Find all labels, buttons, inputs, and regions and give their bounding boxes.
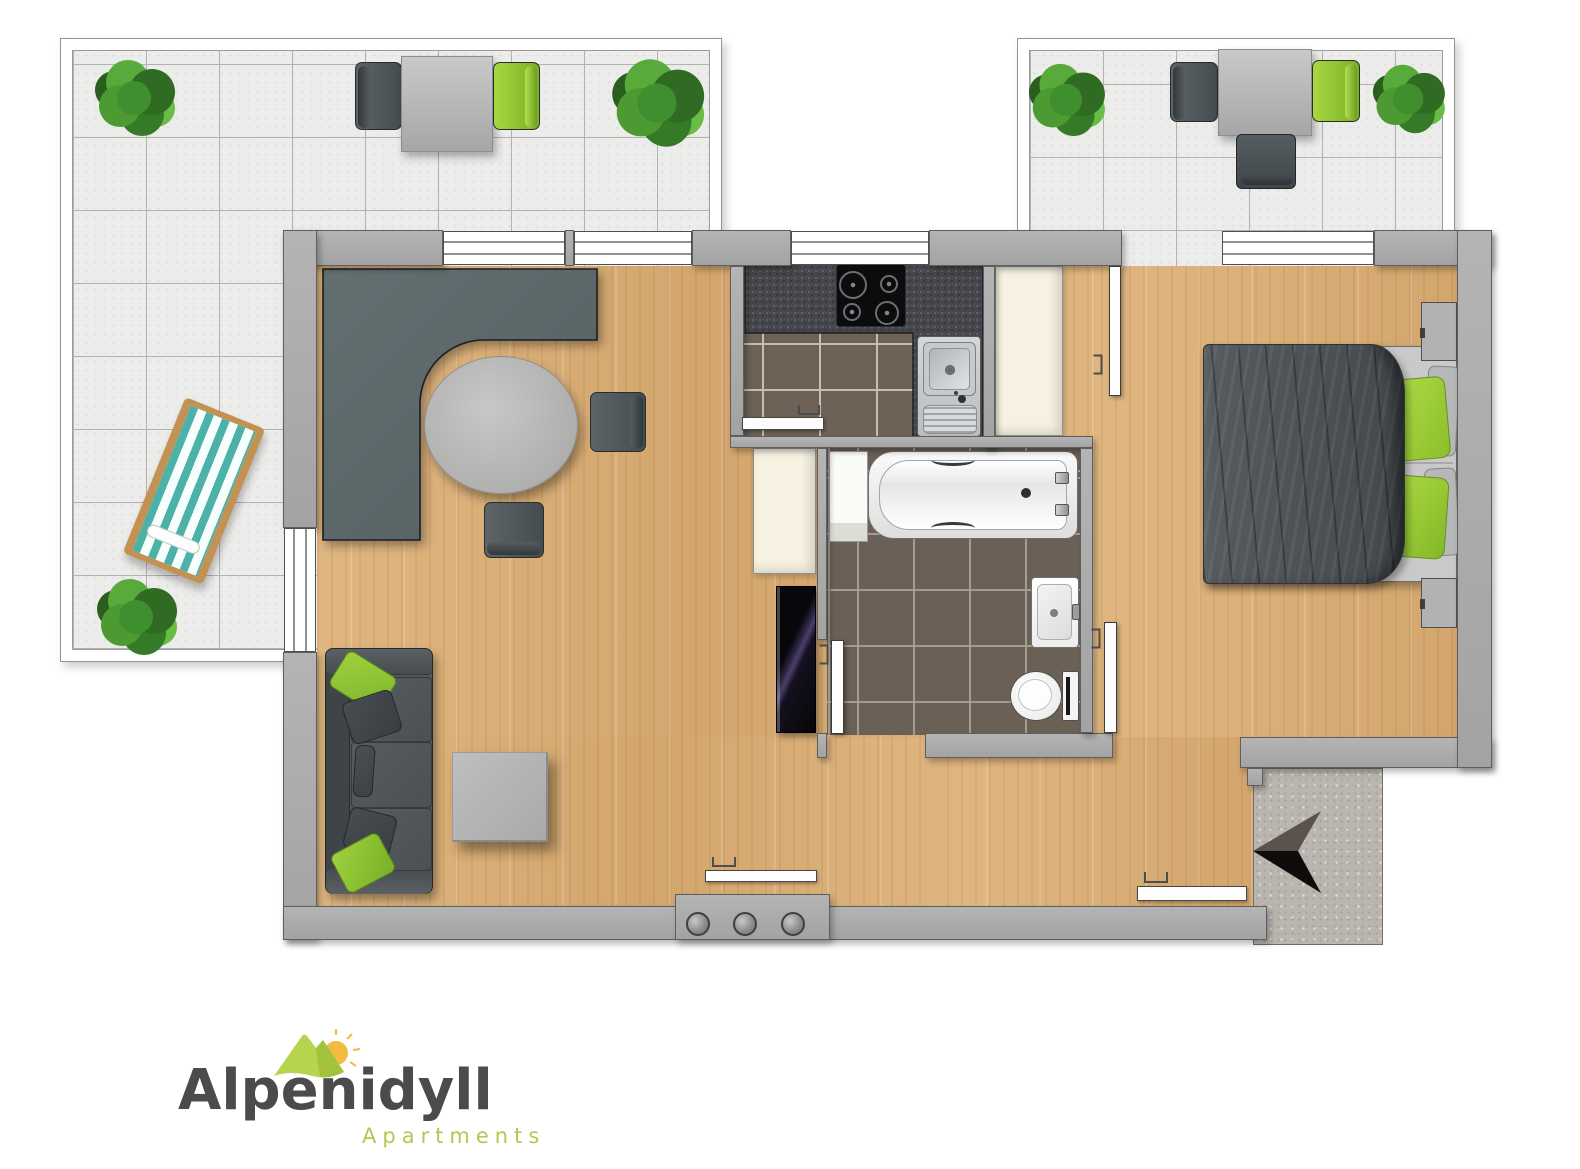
- nightstand: [1421, 302, 1457, 361]
- wall-left-lower: [283, 652, 317, 940]
- plant-icon: [1393, 84, 1424, 115]
- toilet-seat: [1018, 679, 1052, 711]
- nightstand: [1421, 578, 1457, 628]
- kitchen-sink: [917, 336, 981, 437]
- wall-bedroom-bottom: [1240, 737, 1492, 768]
- plant-icon: [117, 81, 151, 115]
- outdoor-table: [401, 56, 493, 152]
- wall-left-upper: [283, 230, 317, 528]
- bedroom-door-leaf: [1104, 622, 1117, 733]
- living-sliding-door: [705, 870, 817, 882]
- chair-backrest: [487, 542, 541, 555]
- burner-icon: [843, 303, 861, 321]
- wall-kitchen-left: [730, 266, 744, 436]
- outdoor-chair-green: [493, 62, 540, 130]
- sofa: [325, 648, 433, 894]
- window-living-1: [443, 231, 565, 265]
- outdoor-table: [1218, 49, 1312, 136]
- entrance-door: [1137, 886, 1247, 901]
- wall-bath-right: [1080, 448, 1093, 733]
- outdoor-chair-dark: [1170, 62, 1218, 122]
- terrace-door-leaf-bedroom: [1109, 266, 1121, 396]
- door-handle-icon: [1144, 872, 1168, 883]
- pillow-dark: [352, 744, 376, 797]
- plant-icon: [1050, 84, 1082, 116]
- chair-backrest: [1173, 66, 1185, 120]
- washbasin-tap-icon: [1072, 604, 1080, 620]
- kitchen-sliding-door: [742, 417, 824, 430]
- window-living-2: [574, 231, 692, 265]
- wall-kitchen-right: [983, 266, 995, 448]
- floor-plan: Alpenidyll Apartments: [0, 0, 1580, 1169]
- door-handle-icon: [712, 857, 736, 867]
- wall-top-c: [929, 230, 1122, 266]
- logo-wordmark: Alpenidyll: [178, 1058, 493, 1123]
- coat-hook-icon: [686, 912, 710, 936]
- outdoor-chair-green: [1312, 60, 1360, 122]
- bed-duvet: [1203, 344, 1405, 584]
- sink-basin: [923, 342, 976, 396]
- bath-shelf: [829, 451, 868, 542]
- bathtub-tap-icon: [1055, 472, 1069, 484]
- north-arrow-icon: [1253, 805, 1323, 895]
- bath-shelf-lower: [830, 523, 867, 541]
- washbasin-drain: [1050, 609, 1058, 617]
- toilet-flush-slot: [1066, 677, 1070, 715]
- round-table: [424, 356, 578, 494]
- coat-hook-icon: [781, 912, 805, 936]
- chair-backrest: [630, 395, 643, 449]
- sink-drainboard: [923, 405, 977, 434]
- door-handle-icon: [798, 405, 820, 415]
- nightstand-knob: [1420, 599, 1425, 609]
- wall-top-b: [692, 230, 791, 266]
- wall-bedroom-step: [1247, 768, 1263, 786]
- window-kitchen: [791, 231, 929, 265]
- desk-chair: [590, 392, 646, 452]
- toilet-cistern: [1062, 671, 1079, 721]
- washbasin: [1031, 577, 1079, 648]
- wall-top-mullion: [565, 230, 574, 266]
- double-bed: [1205, 344, 1458, 584]
- bathroom-door-leaf: [831, 640, 844, 734]
- wall-right: [1457, 230, 1492, 768]
- bathtub-tap-icon: [1055, 504, 1069, 516]
- outdoor-lounge-chair: [1236, 134, 1296, 189]
- outdoor-chair-dark: [355, 62, 402, 130]
- bathtub-handle-icon: [931, 522, 975, 534]
- door-handle-icon: [820, 645, 829, 665]
- wall-bath-left-lower: [817, 733, 827, 758]
- mattress-crease: [1405, 462, 1453, 464]
- sink-faucet-icon: [958, 395, 966, 403]
- window-bedroom: [1222, 231, 1374, 265]
- sink-drain: [945, 365, 955, 375]
- coffee-table: [452, 752, 548, 842]
- cooktop: [836, 264, 906, 327]
- desk-chair: [484, 502, 544, 558]
- bathtub-inner: [879, 460, 1067, 530]
- burner-icon: [875, 301, 899, 325]
- bathtub: [868, 451, 1078, 539]
- burner-icon: [839, 271, 867, 299]
- door-handle-icon: [1094, 355, 1103, 375]
- sliding-glass-door: [776, 586, 816, 733]
- coat-hook-icon: [733, 912, 757, 936]
- wardrobe: [995, 266, 1063, 436]
- terrace-door-living: [284, 528, 316, 652]
- burner-icon: [880, 275, 898, 293]
- bathtub-drain: [1021, 488, 1031, 498]
- bathtub-handle-icon: [931, 454, 975, 466]
- logo-subtitle: Apartments: [362, 1124, 545, 1148]
- lounger-pillow: [145, 523, 202, 556]
- wall-bath-bottom: [925, 733, 1113, 758]
- toilet-bowl: [1010, 671, 1062, 721]
- door-handle-icon: [1092, 629, 1101, 649]
- wall-kitchen-bath-divider: [730, 436, 1093, 448]
- wardrobe: [753, 448, 816, 574]
- chair-backrest: [525, 66, 537, 128]
- chair-backrest: [1345, 64, 1357, 120]
- plant-icon: [637, 83, 676, 122]
- plant-icon: [119, 600, 153, 634]
- chair-backrest: [1241, 173, 1293, 185]
- chair-backrest: [358, 66, 370, 128]
- wall-bath-left-upper: [817, 448, 827, 640]
- nightstand-knob: [1420, 328, 1425, 338]
